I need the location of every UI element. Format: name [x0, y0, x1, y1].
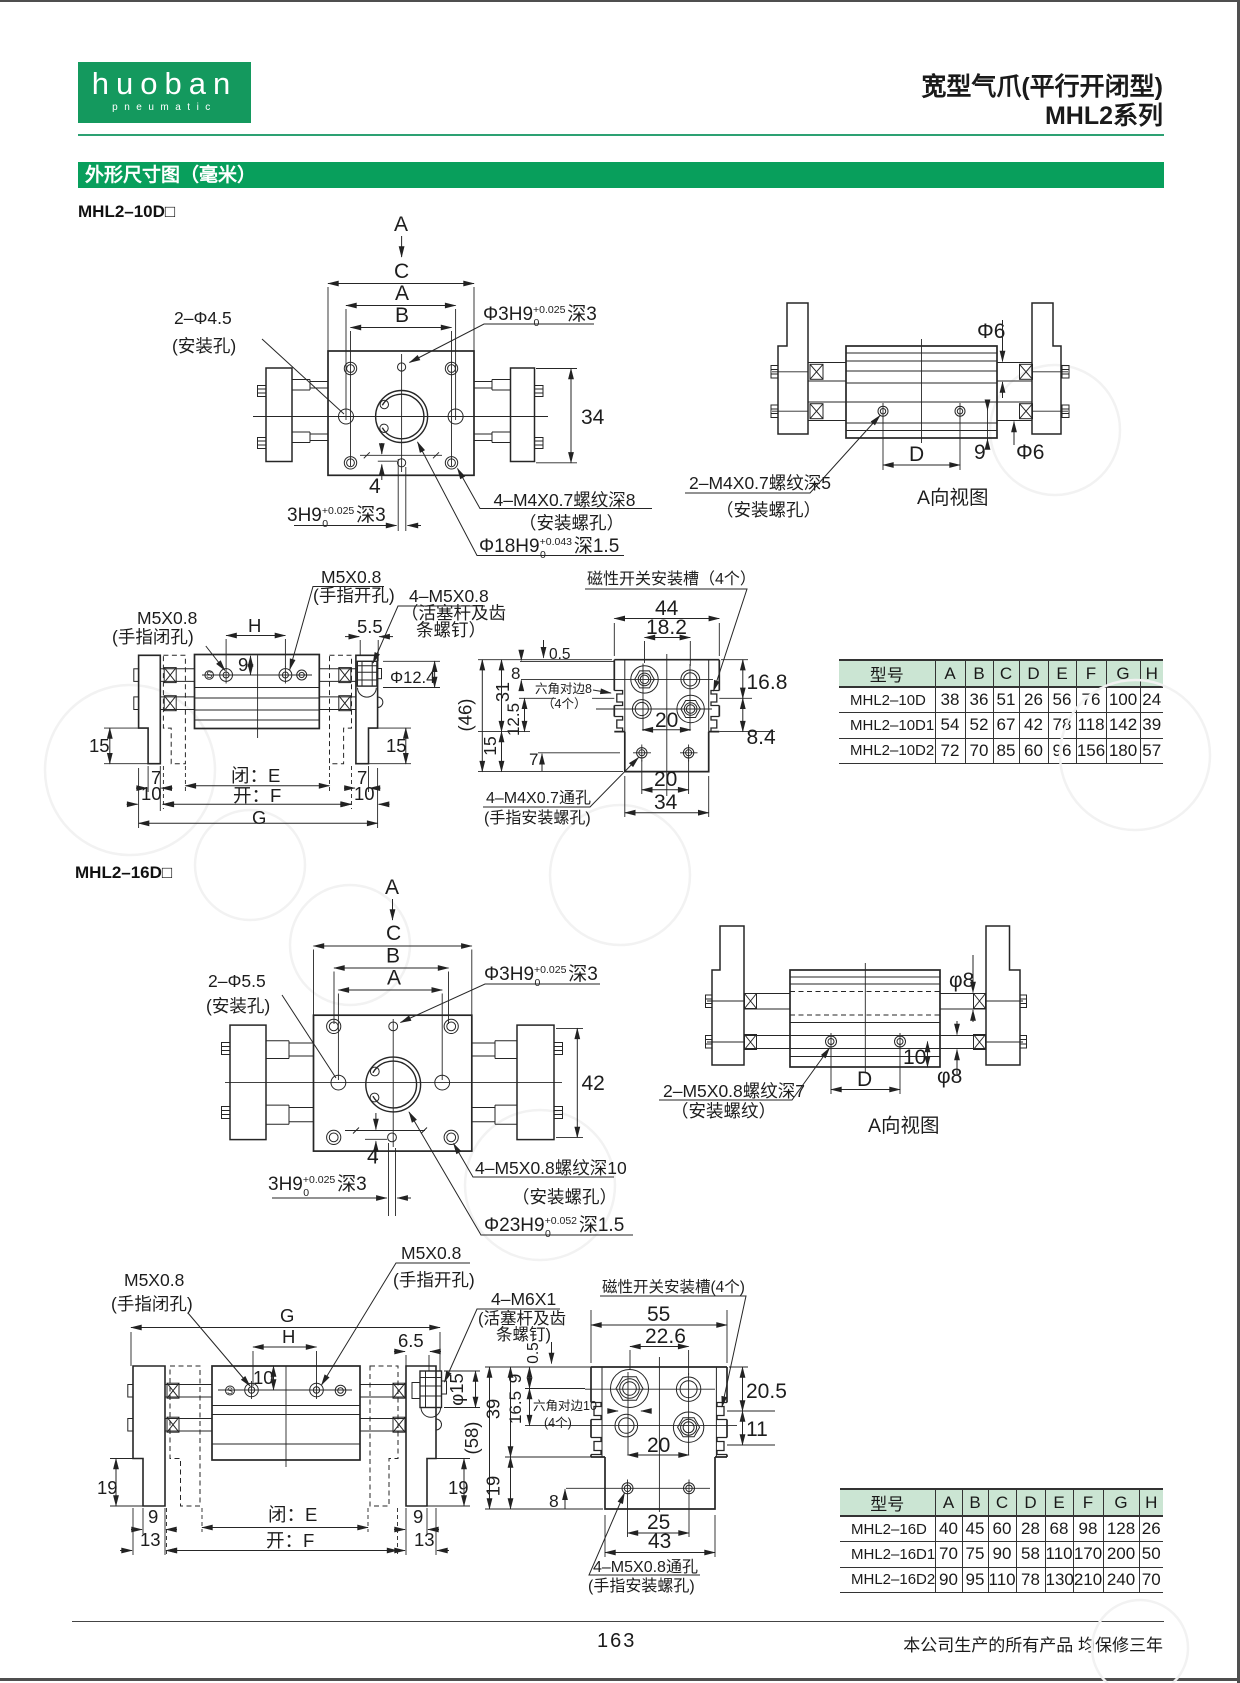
svg-text:(46): (46) [455, 699, 476, 732]
svg-text:19: 19 [97, 1477, 118, 1498]
svg-text:（安装螺纹）: （安装螺纹） [671, 1101, 776, 1121]
svg-text:34: 34 [654, 791, 678, 814]
svg-text:20: 20 [654, 768, 677, 791]
svg-text:13: 13 [414, 1529, 435, 1550]
svg-text:8: 8 [549, 1491, 559, 1511]
svg-text:16.8: 16.8 [747, 671, 788, 694]
svg-text:4–M4X0.7通孔: 4–M4X0.7通孔 [486, 789, 591, 807]
svg-text:A向视图: A向视图 [917, 487, 989, 509]
svg-text:19: 19 [448, 1477, 469, 1498]
svg-text:φ15: φ15 [446, 1373, 467, 1406]
svg-text:Φ6: Φ6 [1016, 441, 1044, 464]
svg-text:S: S [227, 1386, 233, 1396]
svg-text:15: 15 [386, 735, 407, 756]
svg-text:(手指闭孔): (手指闭孔) [111, 1294, 193, 1314]
svg-text:开：F: 开：F [266, 1530, 314, 1551]
svg-text:9: 9 [505, 1374, 525, 1384]
svg-text:B: B [395, 304, 409, 327]
svg-text:(安装孔): (安装孔) [206, 996, 270, 1016]
svg-text:10: 10 [903, 1046, 926, 1069]
svg-text:8.4: 8.4 [747, 726, 777, 749]
svg-text:15: 15 [480, 736, 500, 755]
svg-text:C: C [394, 260, 409, 283]
svg-text:闭：E: 闭：E [268, 1504, 317, 1525]
svg-text:15: 15 [89, 735, 110, 756]
svg-text:Φ3H9+0.0250深3: Φ3H9+0.0250深3 [483, 303, 597, 329]
svg-text:G: G [280, 1305, 294, 1326]
svg-text:(58): (58) [461, 1422, 482, 1455]
svg-text:C: C [386, 922, 401, 945]
svg-text:H: H [248, 615, 261, 636]
svg-text:(手指安装螺孔): (手指安装螺孔) [588, 1577, 695, 1595]
svg-text:Φ23H9+0.0520深1.5: Φ23H9+0.0520深1.5 [484, 1214, 624, 1240]
svg-text:7: 7 [529, 750, 538, 769]
svg-text:Φ3H9+0.0250深3: Φ3H9+0.0250深3 [484, 963, 598, 989]
svg-text:A: A [394, 213, 408, 236]
svg-text:闭：E: 闭：E [231, 765, 280, 786]
svg-text:4: 4 [367, 1146, 379, 1169]
svg-text:4–M5X0.8螺纹深10: 4–M5X0.8螺纹深10 [475, 1158, 627, 1178]
svg-text:8: 8 [511, 664, 520, 683]
svg-text:3H9+0.0250深3: 3H9+0.0250深3 [268, 1173, 367, 1199]
svg-text:11: 11 [746, 1418, 768, 1441]
svg-text:34: 34 [581, 406, 605, 429]
svg-text:A: A [385, 876, 399, 899]
svg-text:4–M6X1: 4–M6X1 [491, 1289, 556, 1309]
svg-text:M5X0.8: M5X0.8 [124, 1270, 184, 1290]
svg-text:0.5: 0.5 [525, 1342, 542, 1364]
svg-text:19: 19 [483, 1476, 504, 1497]
svg-text:Φ6: Φ6 [977, 320, 1005, 343]
svg-text:H: H [282, 1326, 295, 1347]
svg-text:9: 9 [148, 1506, 158, 1527]
svg-text:B: B [386, 945, 400, 968]
svg-text:2–Φ5.5: 2–Φ5.5 [208, 971, 266, 991]
svg-text:31: 31 [493, 682, 513, 702]
svg-text:(手指闭孔): (手指闭孔) [112, 627, 194, 647]
svg-text:(手指开孔): (手指开孔) [393, 1270, 475, 1290]
svg-text:M5X0.8: M5X0.8 [321, 567, 381, 587]
svg-text:42: 42 [582, 1072, 605, 1095]
svg-text:φ8: φ8 [937, 1065, 962, 1088]
svg-text:22.6: 22.6 [645, 1325, 686, 1348]
svg-text:D: D [909, 443, 924, 466]
svg-text:(手指安装螺孔): (手指安装螺孔) [484, 809, 591, 827]
svg-text:G: G [252, 807, 266, 828]
svg-text:磁性开关安装槽(4个): 磁性开关安装槽(4个) [602, 1278, 745, 1296]
svg-text:（安装螺孔）: （安装螺孔） [512, 1187, 617, 1207]
svg-text:六角对边10: 六角对边10 [533, 1399, 597, 1413]
svg-text:10: 10 [354, 783, 375, 804]
svg-text:(4个): (4个) [544, 1416, 572, 1430]
svg-text:18.2: 18.2 [646, 616, 687, 639]
svg-text:16.5: 16.5 [506, 1391, 525, 1424]
svg-text:3H9+0.0250深3: 3H9+0.0250深3 [287, 504, 386, 530]
svg-text:条螺钉）: 条螺钉） [416, 620, 486, 640]
svg-text:φ8: φ8 [949, 969, 974, 992]
svg-text:2–M4X0.7螺纹深5: 2–M4X0.7螺纹深5 [689, 473, 831, 493]
svg-text:6.5: 6.5 [398, 1330, 424, 1351]
svg-text:12.5: 12.5 [504, 703, 523, 736]
svg-text:39: 39 [483, 1399, 504, 1420]
svg-text:D: D [857, 1068, 872, 1091]
svg-text:开：F: 开：F [233, 785, 281, 806]
svg-text:Φ18H9+0.0430深1.5: Φ18H9+0.0430深1.5 [479, 535, 619, 561]
svg-text:(安装孔): (安装孔) [172, 336, 236, 356]
svg-text:9: 9 [974, 441, 986, 464]
svg-text:20: 20 [647, 1434, 670, 1457]
svg-text:A向视图: A向视图 [868, 1115, 940, 1137]
svg-text:M5X0.8: M5X0.8 [401, 1243, 461, 1263]
svg-text:M5X0.8: M5X0.8 [137, 608, 197, 628]
svg-text:10: 10 [141, 783, 162, 804]
svg-text:（4个）: （4个） [542, 697, 586, 711]
svg-text:10: 10 [253, 1367, 274, 1388]
svg-text:9: 9 [413, 1506, 423, 1527]
svg-text:A: A [395, 282, 409, 305]
svg-text:4–M5X0.8通孔: 4–M5X0.8通孔 [593, 1558, 698, 1576]
svg-text:（安装螺孔）: （安装螺孔） [519, 513, 624, 533]
svg-text:13: 13 [140, 1529, 161, 1550]
svg-text:20.5: 20.5 [746, 1380, 787, 1403]
svg-text:2–M5X0.8螺纹深7: 2–M5X0.8螺纹深7 [663, 1081, 805, 1101]
svg-text:(手指开孔): (手指开孔) [313, 586, 395, 606]
svg-text:S: S [206, 670, 212, 680]
svg-text:条螺钉): 条螺钉) [496, 1325, 551, 1344]
svg-text:磁性开关安装槽（4个）: 磁性开关安装槽（4个） [587, 570, 756, 588]
svg-text:A: A [387, 967, 401, 990]
svg-text:4–M4X0.7螺纹深8: 4–M4X0.7螺纹深8 [494, 490, 636, 510]
svg-text:9: 9 [238, 654, 248, 675]
svg-text:20: 20 [655, 709, 678, 732]
svg-text:Φ12.4: Φ12.4 [390, 669, 435, 687]
svg-text:5.5: 5.5 [357, 616, 383, 637]
svg-text:（安装螺孔）: （安装螺孔） [716, 500, 821, 520]
svg-text:55: 55 [647, 1303, 670, 1326]
svg-text:六角对边8: 六角对边8 [535, 682, 592, 696]
svg-text:4: 4 [369, 475, 381, 498]
svg-text:0.5: 0.5 [549, 646, 571, 663]
svg-text:43: 43 [648, 1530, 671, 1553]
svg-text:2–Φ4.5: 2–Φ4.5 [174, 308, 232, 328]
